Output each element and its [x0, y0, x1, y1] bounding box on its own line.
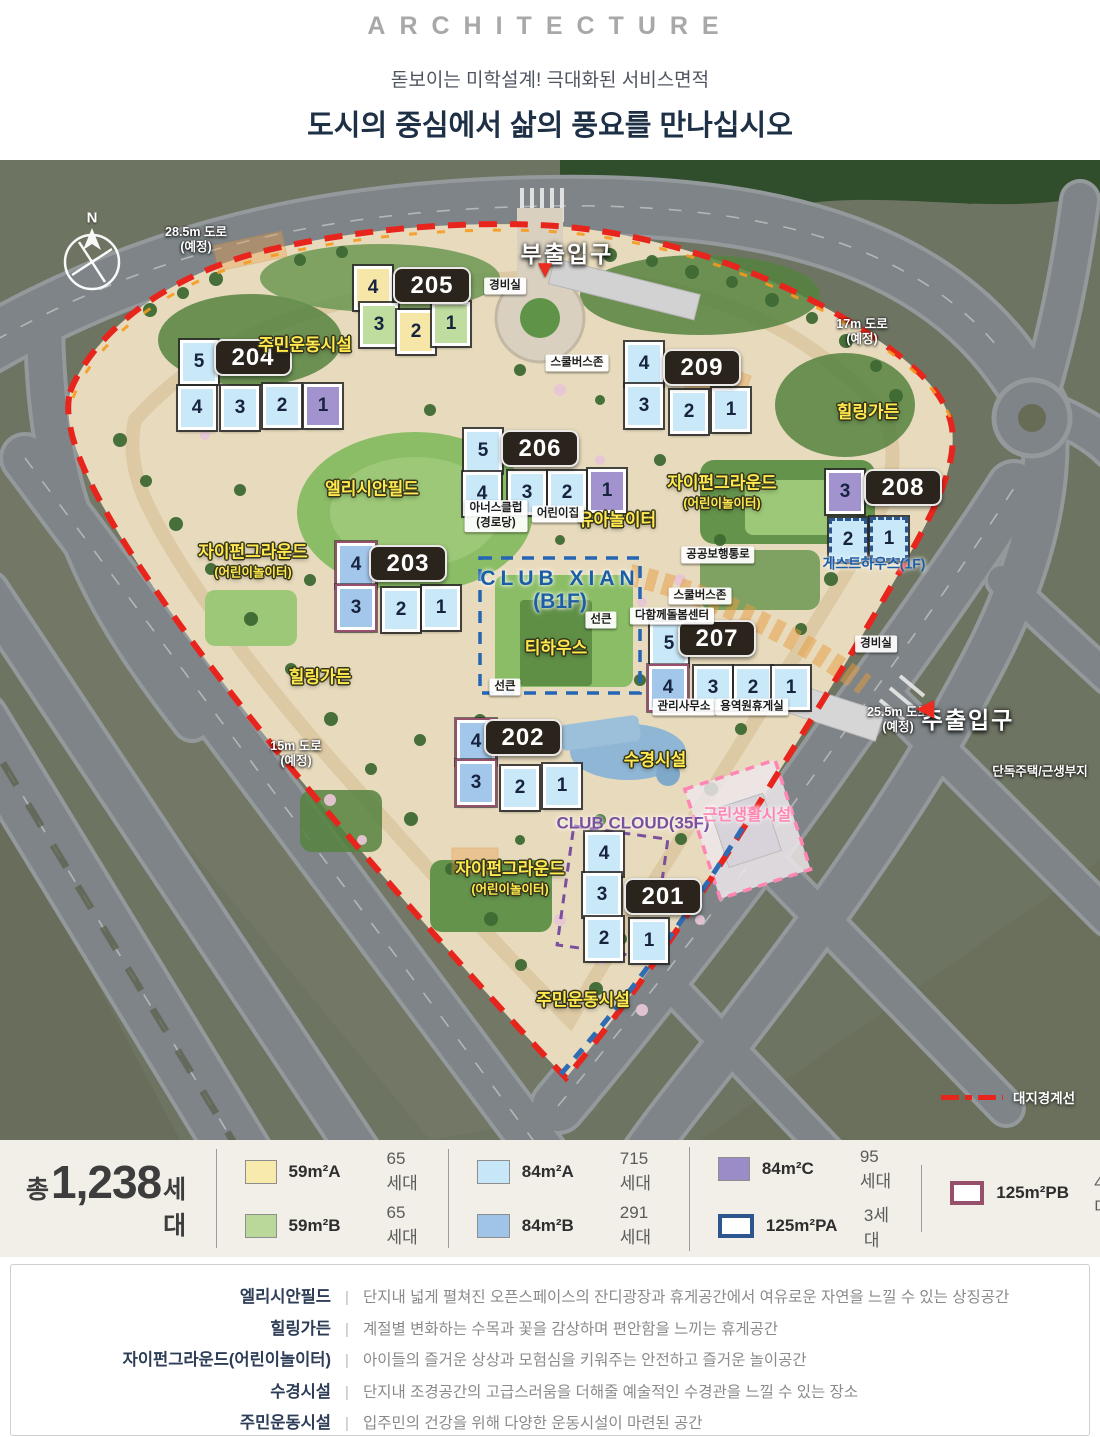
term-separator: |	[341, 1409, 353, 1437]
road-label: 17m 도로(예정)	[836, 317, 888, 347]
chip-label: 어린이집	[532, 506, 584, 523]
chip-label: 아너스클럽(경로당)	[465, 500, 528, 532]
legend-item-59A: 59m²A65세대	[245, 1149, 420, 1194]
label-line: 아너스클럽	[470, 501, 523, 516]
legend-item-84C: 84m²C95세대	[718, 1147, 893, 1192]
chip-label: 공공보행통로	[681, 547, 754, 564]
legend-type-label: 59m²B	[289, 1216, 375, 1236]
legend-type-count: 95세대	[860, 1147, 894, 1192]
label-line: 28.5m 도로	[165, 225, 227, 240]
legend-swatch-84B	[477, 1214, 510, 1238]
legend-type-label: 84m²C	[762, 1159, 848, 1179]
legend-type-count: 715세대	[620, 1149, 662, 1194]
term-separator: |	[341, 1346, 353, 1377]
label-line: (어린이놀이터)	[455, 879, 564, 898]
legend-group: 84m²A715세대84m²B291세대	[448, 1149, 661, 1248]
label-line: CLUB CLOUD(35F)	[557, 815, 710, 834]
label-line: (예정)	[270, 754, 322, 769]
facility-label: 수경시설	[624, 746, 687, 771]
label-line: 힐링가든	[837, 398, 900, 423]
legend-type-count: 65세대	[387, 1149, 421, 1194]
building-badge-205: 205	[393, 267, 471, 304]
legend-type-label: 84m²B	[522, 1216, 608, 1236]
legend-type-label: 125m²PA	[766, 1216, 852, 1236]
building-unit-205-3: 3	[360, 303, 398, 347]
chip-label: 경비실	[855, 636, 897, 653]
chip-label: 경비실	[484, 278, 526, 295]
label-line: 티하우스	[525, 634, 588, 659]
legend-type-count: 3세대	[864, 1201, 893, 1251]
building-unit-202-3: 3	[457, 761, 495, 805]
legend-groups: 59m²A65세대59m²B65세대84m²A715세대84m²B291세대84…	[216, 1147, 1100, 1251]
label-line: (예정)	[836, 332, 888, 347]
label-line: 공공보행통로	[686, 548, 749, 563]
facility-label: 티하우스	[525, 634, 588, 659]
building-unit-205-2: 2	[397, 310, 435, 354]
header: ARCHITECTURE 돋보이는 미학설계! 극대화된 서비스면적 도시의 중…	[0, 0, 1100, 160]
label-line: 자이펀그라운드	[667, 469, 776, 494]
road-label: 15m 도로(예정)	[270, 739, 322, 769]
legend-type-label: 59m²A	[289, 1162, 375, 1182]
building-badge-207: 207	[678, 620, 756, 657]
building-badge-203: 203	[369, 545, 447, 582]
building-unit-204-4: 4	[178, 386, 216, 430]
legend-group: 59m²A65세대59m²B65세대	[216, 1149, 420, 1248]
legend-item-59B: 59m²B65세대	[245, 1203, 420, 1248]
page-title: 도시의 중심에서 삶의 풍요를 만나십시오	[0, 102, 1100, 144]
label-line: 경비실	[489, 279, 521, 294]
building-badge-209: 209	[663, 349, 741, 386]
building-unit-209-1: 1	[712, 388, 750, 432]
building-unit-204-3: 3	[221, 386, 259, 430]
facility-term: 수경시설	[35, 1377, 331, 1408]
label-line: 17m 도로	[836, 317, 888, 332]
special-label: 게스트하우스(1F)	[823, 556, 926, 571]
legend-swatch-84A	[477, 1160, 510, 1184]
term-separator: |	[341, 1378, 353, 1409]
legend-bar: 총 1,238 세대 59m²A65세대59m²B65세대84m²A715세대8…	[0, 1140, 1100, 1257]
legend-item-125PB: 125m²PB4세대	[950, 1168, 1100, 1218]
building-unit-204-1: 1	[304, 384, 342, 428]
facility-descriptions: 엘리시안필드|단지내 넓게 펼쳐진 오픈스페이스의 잔디광장과 휴게공간에서 여…	[10, 1264, 1090, 1436]
description-rows: 엘리시안필드|단지내 넓게 펼쳐진 오픈스페이스의 잔디광장과 휴게공간에서 여…	[35, 1282, 1065, 1437]
legend-swatch-59A	[245, 1160, 276, 1184]
label-line: 다함께돌봄센터	[635, 609, 709, 624]
building-unit-201-3: 3	[583, 873, 621, 917]
building-badge-208: 208	[864, 469, 942, 506]
label-line: 스쿨버스존	[674, 589, 727, 604]
label-line: 자이펀그라운드	[455, 855, 564, 880]
description-row: 주민운동시설|입주민의 건강을 위해 다양한 운동시설이 마련된 공간	[35, 1408, 1065, 1437]
special-label: CLUB CLOUD(35F)	[557, 815, 710, 834]
building-unit-201-2: 2	[585, 917, 623, 961]
building-unit-202-2: 2	[501, 766, 539, 810]
chip-label: 관리사무소	[653, 699, 716, 716]
legend-group: 84m²C95세대125m²PA3세대	[689, 1147, 893, 1251]
facility-label: 힐링가든	[289, 663, 352, 688]
total-prefix: 총	[26, 1170, 49, 1206]
boundary-legend: 대지경계선	[941, 1087, 1075, 1107]
label-line: (예정)	[165, 240, 227, 255]
facility-label: 자이펀그라운드(어린이놀이터)	[198, 538, 307, 581]
legend-type-count: 291세대	[620, 1203, 662, 1248]
building-unit-209-3: 3	[625, 384, 663, 428]
entrance-marker-icon: ◀	[916, 694, 934, 723]
facility-label: 주민운동시설	[258, 331, 352, 356]
facility-description: 계절별 변화하는 수목과 꽃을 감상하며 편안함을 느끼는 휴게공간	[363, 1315, 1065, 1346]
road-label: 28.5m 도로(예정)	[165, 225, 227, 255]
label-line: 힐링가든	[289, 663, 352, 688]
building-unit-206-5: 5	[464, 429, 502, 473]
facility-label: 유아놀이터	[578, 506, 656, 531]
description-row: 자이펀그라운드(어린이놀이터)|아이들의 즐거운 상상과 모험심을 키워주는 안…	[35, 1345, 1065, 1377]
label-line: 근린생활시설	[703, 807, 791, 825]
label-line: 단독주택/근생부지	[992, 765, 1087, 780]
label-line: 스쿨버스존	[551, 356, 604, 371]
facility-description: 단지내 넓게 펼쳐진 오픈스페이스의 잔디광장과 휴게공간에서 여유로운 자연을…	[363, 1283, 1065, 1314]
description-row: 힐링가든|계절별 변화하는 수목과 꽃을 감상하며 편안함을 느끼는 휴게공간	[35, 1314, 1065, 1346]
total-households: 총 1,238 세대	[26, 1155, 216, 1242]
building-badge-206: 206	[501, 430, 579, 467]
label-line: 선큰	[494, 680, 515, 695]
facility-label: 힐링가든	[837, 398, 900, 423]
label-line: 관리사무소	[658, 700, 711, 715]
page: ARCHITECTURE 돋보이는 미학설계! 극대화된 서비스면적 도시의 중…	[0, 0, 1100, 1437]
label-line: 선큰	[590, 613, 611, 628]
chip-label: 스쿨버스존	[669, 588, 732, 605]
building-unit-203-1: 1	[422, 586, 460, 630]
label-line: (B1F)	[480, 590, 639, 613]
building-unit-205-1: 1	[432, 302, 470, 346]
legend-swatch-125PB	[950, 1181, 984, 1205]
legend-type-label: 125m²PB	[996, 1183, 1082, 1203]
label-line: 엘리시안필드	[325, 475, 419, 500]
entrance-label: 주출입구	[922, 701, 1015, 735]
compass-north-label: N	[87, 210, 98, 227]
building-badge-201: 201	[624, 878, 702, 915]
label-line: 유아놀이터	[578, 506, 656, 531]
facility-description: 입주민의 건강을 위해 다양한 운동시설이 마련된 공간	[363, 1409, 1065, 1437]
legend-type-count: 65세대	[387, 1203, 421, 1248]
building-badge-202: 202	[484, 719, 562, 756]
section-subtitle: 돋보이는 미학설계! 극대화된 서비스면적	[0, 65, 1100, 92]
term-separator: |	[341, 1315, 353, 1346]
chip-label: 스쿨버스존	[546, 355, 609, 372]
label-line: 게스트하우스(1F)	[823, 556, 926, 571]
building-unit-203-3: 3	[337, 586, 375, 630]
total-value: 1,238	[51, 1155, 161, 1209]
label-line: 용역원휴게실	[720, 700, 783, 715]
total-suffix: 세대	[163, 1170, 186, 1242]
legend-swatch-84C	[718, 1157, 749, 1181]
facility-description: 아이들의 즐거운 상상과 모험심을 키워주는 안전하고 즐거운 놀이공간	[363, 1346, 1065, 1377]
building-unit-204-5: 5	[180, 340, 218, 384]
label-line: 주민운동시설	[536, 986, 630, 1011]
boundary-dash-sample	[941, 1095, 1003, 1100]
label-line: 주민운동시설	[258, 331, 352, 356]
building-unit-202-1: 1	[543, 764, 581, 808]
legend-type-count: 4세대	[1094, 1168, 1100, 1218]
description-row: 수경시설|단지내 조경공간의 고급스러움을 더해줄 예술적인 수경관을 느낄 수…	[35, 1377, 1065, 1409]
special-label: 근린생활시설	[703, 807, 791, 825]
site-plan-map: 4321205543212044321209543212063212084321…	[0, 160, 1100, 1140]
building-unit-209-2: 2	[670, 390, 708, 434]
facility-label: 주민운동시설	[536, 986, 630, 1011]
legend-swatch-125PA	[718, 1214, 753, 1238]
special-label: CLUB XIAN(B1F)	[480, 567, 639, 613]
building-unit-203-2: 2	[382, 588, 420, 632]
facility-label: 엘리시안필드	[325, 475, 419, 500]
chip-label: 선큰	[585, 612, 616, 629]
facility-term: 주민운동시설	[35, 1408, 331, 1437]
facility-label: 자이펀그라운드(어린이놀이터)	[455, 855, 564, 898]
building-unit-204-2: 2	[263, 384, 301, 428]
building-unit-201-1: 1	[630, 919, 668, 963]
label-line: CLUB XIAN	[480, 567, 639, 590]
building-unit-209-4: 4	[625, 342, 663, 386]
label-line: 수경시설	[624, 746, 687, 771]
legend-item-84B: 84m²B291세대	[477, 1203, 661, 1248]
label-line: 자이펀그라운드	[198, 538, 307, 563]
legend-swatch-59B	[245, 1214, 276, 1238]
section-eyebrow: ARCHITECTURE	[0, 12, 1100, 41]
facility-label: 자이펀그라운드(어린이놀이터)	[667, 469, 776, 512]
term-separator: |	[341, 1283, 353, 1314]
label-line: 경비실	[860, 637, 892, 652]
legend-type-label: 84m²A	[522, 1162, 608, 1182]
facility-term: 힐링가든	[35, 1314, 331, 1345]
description-row: 엘리시안필드|단지내 넓게 펼쳐진 오픈스페이스의 잔디광장과 휴게공간에서 여…	[35, 1282, 1065, 1314]
label-line: (어린이놀이터)	[198, 562, 307, 581]
chip-label: 다함께돌봄센터	[630, 608, 714, 625]
facility-term: 자이펀그라운드(어린이놀이터)	[35, 1345, 331, 1376]
chip-label: 용역원휴게실	[715, 699, 788, 716]
road-label: 단독주택/근생부지	[992, 765, 1087, 780]
label-line: 어린이집	[537, 507, 579, 522]
legend-item-125PA: 125m²PA3세대	[718, 1201, 893, 1251]
entrance-marker-icon: ▼	[533, 256, 557, 284]
label-line: 15m 도로	[270, 739, 322, 754]
facility-description: 단지내 조경공간의 고급스러움을 더해줄 예술적인 수경관을 느낄 수 있는 장…	[363, 1378, 1065, 1409]
legend-group: 125m²PB4세대	[921, 1165, 1100, 1232]
boundary-legend-label: 대지경계선	[1013, 1087, 1075, 1107]
label-line: (경로당)	[470, 516, 523, 531]
label-line: (어린이놀이터)	[667, 493, 776, 512]
facility-term: 엘리시안필드	[35, 1282, 331, 1313]
legend-item-84A: 84m²A715세대	[477, 1149, 661, 1194]
chip-label: 선큰	[489, 679, 520, 696]
building-unit-201-4: 4	[585, 832, 623, 876]
building-unit-208-3: 3	[826, 470, 864, 514]
